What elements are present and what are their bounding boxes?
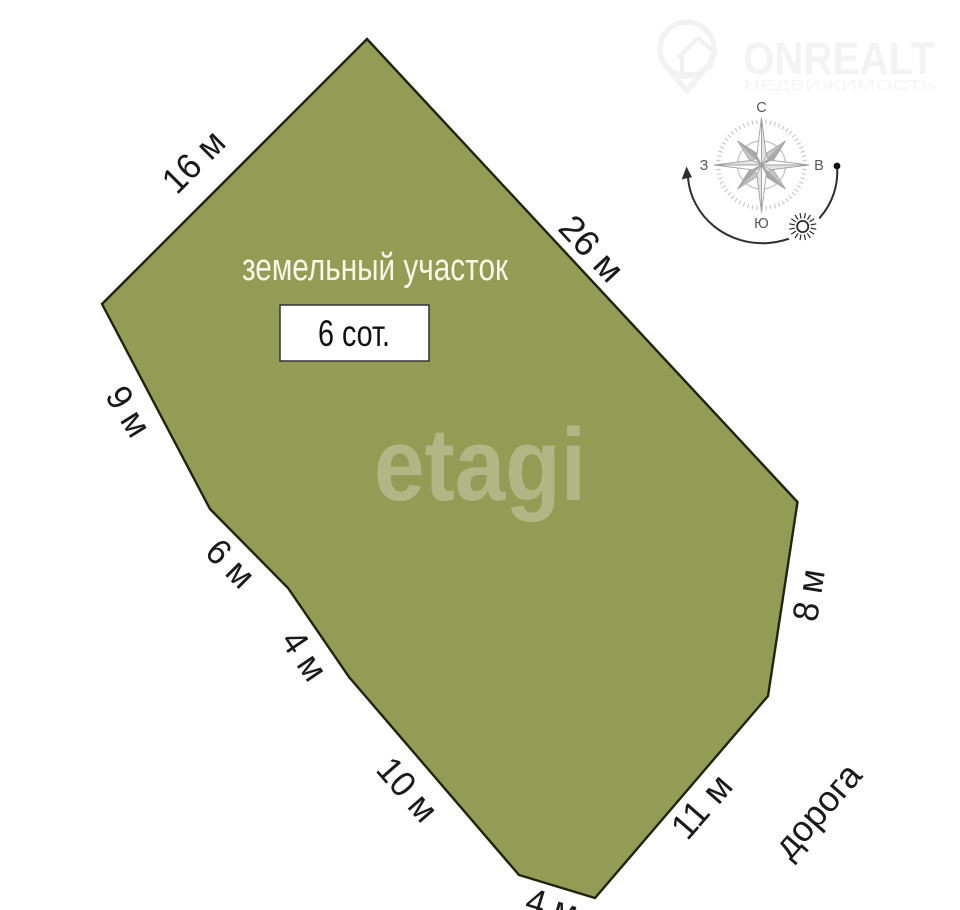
svg-text:НЕДВИЖИМОСТЬ: НЕДВИЖИМОСТЬ [744, 78, 936, 94]
svg-text:З: З [700, 158, 709, 174]
svg-text:Ю: Ю [754, 216, 769, 232]
svg-text:etagi: etagi [374, 407, 586, 522]
svg-text:С: С [756, 100, 766, 116]
svg-text:В: В [814, 158, 824, 174]
svg-text:ONREALT: ONREALT [743, 33, 935, 84]
svg-text:земельный участок: земельный участок [242, 247, 508, 289]
svg-text:6 сот.: 6 сот. [318, 313, 390, 354]
svg-text:8 м: 8 м [784, 566, 833, 624]
